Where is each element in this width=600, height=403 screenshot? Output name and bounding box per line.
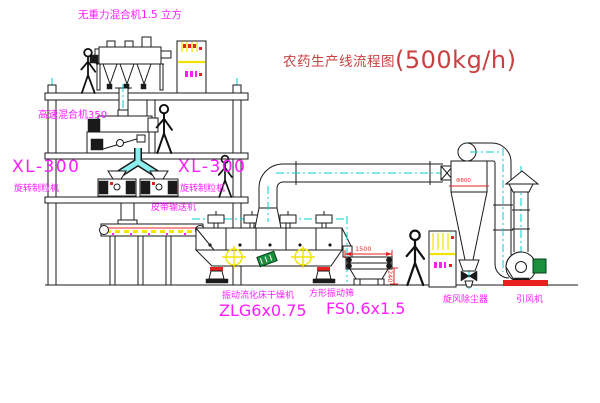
label-fan: 引风机 bbox=[516, 296, 543, 305]
title-text: 农药生产线流程图 bbox=[283, 50, 395, 70]
person-mezzanine bbox=[157, 105, 172, 153]
label-granulator-left-model: XL-300 bbox=[12, 159, 80, 176]
control-cabinet-top bbox=[177, 41, 206, 93]
control-cabinet-ground bbox=[429, 231, 456, 287]
label-dryer-name: 振动流化床干燥机 bbox=[222, 292, 294, 301]
belt-conveyor-machine bbox=[100, 203, 205, 285]
label-high-speed-mixer: 高速混合机350 bbox=[38, 111, 107, 121]
label-granulator-right-name: 旋转制粒机 bbox=[180, 185, 225, 194]
label-gravity-mixer: 无重力混合机1.5 立方 bbox=[78, 10, 182, 21]
label-dryer-model: ZLG6x0.75 bbox=[219, 303, 307, 319]
person-ground bbox=[407, 231, 424, 285]
dim-cyclone-diameter: Φ800 bbox=[456, 179, 471, 185]
gravity-mixer bbox=[90, 37, 171, 116]
title-capacity: (500kg/h) bbox=[395, 46, 516, 74]
diagram-title: 农药生产线流程图 (500kg/h) bbox=[283, 46, 516, 74]
label-granulator-right-model: XL-300 bbox=[178, 159, 246, 176]
granulator-right-machine bbox=[140, 171, 178, 196]
granulator-left-machine bbox=[98, 171, 136, 196]
label-belt-conveyor: 皮带输送机 bbox=[151, 204, 196, 213]
dim-sieve-base-height: 240 bbox=[387, 270, 394, 282]
label-granulator-left-name: 旋转制粒机 bbox=[14, 185, 59, 194]
dim-sieve-length: 1500 bbox=[355, 246, 372, 253]
label-sieve-model: FS0.6x1.5 bbox=[326, 301, 405, 317]
flow-diagram: 农药生产线流程图 (500kg/h) 无重力混合机1.5 立方 高速混合机350… bbox=[0, 0, 600, 403]
label-sieve-name: 方形振动筛 bbox=[309, 290, 354, 299]
label-cyclone: 旋风除尘器 bbox=[443, 296, 488, 305]
induced-draft-fan-machine bbox=[503, 252, 548, 286]
